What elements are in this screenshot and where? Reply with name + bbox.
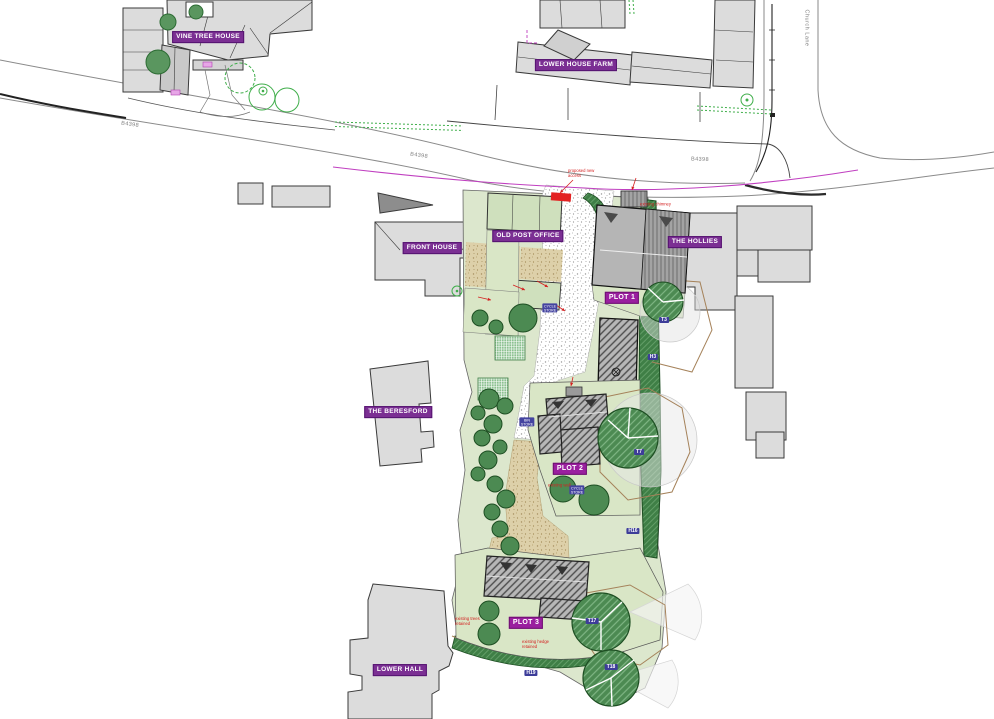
plot-3 — [455, 548, 702, 708]
site-plan-drawing — [0, 0, 994, 719]
buildings-roadside — [238, 183, 433, 213]
site-area — [452, 185, 712, 708]
building-the-beresford — [370, 361, 434, 466]
plot1-chimney — [621, 191, 647, 207]
entrance-marker — [551, 192, 572, 201]
roadside-wall-west — [0, 94, 126, 118]
plot-2 — [528, 380, 697, 516]
visibility-splay-line — [333, 167, 858, 190]
building-lower-hall — [348, 584, 453, 719]
planting-grid-1 — [495, 336, 525, 360]
farm-road-wall — [447, 121, 790, 178]
buildings-east — [735, 296, 786, 458]
junction-kerb — [745, 185, 826, 195]
plot2-house-wing-w — [538, 414, 562, 454]
church-lane-east-edge — [818, 0, 994, 160]
site-plan: VINE TREE HOUSELOWER HOUSE FARMFRONT HOU… — [0, 0, 994, 719]
plot2-chimney — [566, 387, 582, 396]
building-lower-house-farm — [495, 0, 755, 122]
plot2-house-wing-s — [560, 427, 600, 467]
tan-courtyard — [519, 247, 563, 282]
